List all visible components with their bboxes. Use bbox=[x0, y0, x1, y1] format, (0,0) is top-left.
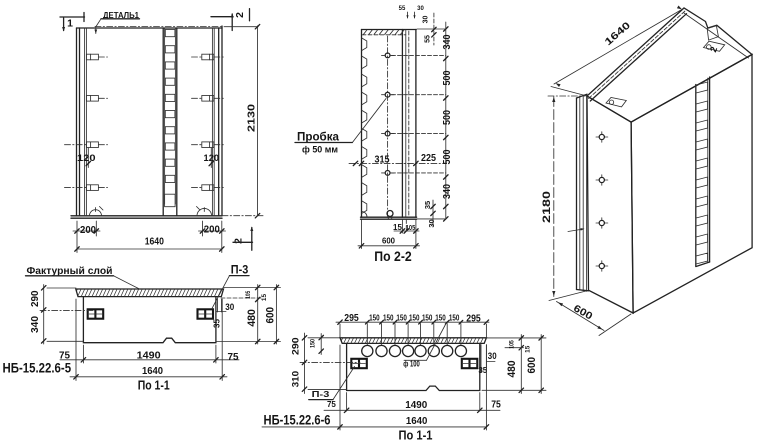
svg-text:1640: 1640 bbox=[406, 416, 428, 427]
svg-text:15: 15 bbox=[393, 223, 402, 232]
svg-text:ф 50 мм: ф 50 мм bbox=[302, 144, 338, 155]
svg-text:150: 150 bbox=[383, 314, 394, 323]
svg-text:200: 200 bbox=[204, 225, 220, 236]
svg-text:П-3: П-3 bbox=[312, 389, 330, 399]
svg-text:600: 600 bbox=[265, 307, 277, 324]
svg-text:По 1-1: По 1-1 bbox=[399, 427, 433, 442]
svg-text:1490: 1490 bbox=[405, 400, 427, 411]
svg-text:225: 225 bbox=[421, 153, 436, 164]
svg-text:150: 150 bbox=[309, 339, 316, 348]
svg-text:30: 30 bbox=[423, 16, 430, 24]
svg-text:55: 55 bbox=[425, 35, 432, 43]
svg-text:2130: 2130 bbox=[246, 103, 257, 132]
svg-text:600: 600 bbox=[526, 357, 538, 374]
svg-text:Фактурный слой: Фактурный слой bbox=[27, 265, 113, 277]
svg-text:35: 35 bbox=[213, 319, 222, 328]
svg-text:1490: 1490 bbox=[137, 350, 161, 361]
svg-text:По 2-2: По 2-2 bbox=[374, 249, 412, 264]
svg-text:НБ-15.22.6-6: НБ-15.22.6-6 bbox=[264, 412, 331, 427]
svg-text:105: 105 bbox=[245, 291, 252, 299]
svg-text:105: 105 bbox=[508, 340, 515, 349]
svg-text:75: 75 bbox=[228, 352, 239, 363]
svg-text:295: 295 bbox=[344, 313, 359, 324]
svg-text:200: 200 bbox=[80, 225, 96, 236]
svg-text:480: 480 bbox=[506, 361, 518, 378]
svg-text:2: 2 bbox=[233, 238, 245, 244]
svg-text:75: 75 bbox=[327, 400, 336, 409]
svg-text:150: 150 bbox=[369, 314, 380, 323]
svg-text:П-3: П-3 bbox=[231, 263, 249, 277]
svg-text:500: 500 bbox=[442, 149, 453, 164]
svg-text:55: 55 bbox=[399, 6, 406, 12]
svg-text:15: 15 bbox=[261, 294, 268, 302]
svg-text:340: 340 bbox=[442, 34, 453, 49]
svg-text:500: 500 bbox=[442, 70, 453, 85]
svg-text:30: 30 bbox=[417, 6, 424, 12]
svg-text:Пробка: Пробка bbox=[297, 129, 339, 143]
svg-text:340: 340 bbox=[442, 184, 453, 199]
svg-text:290: 290 bbox=[290, 337, 300, 355]
svg-text:105: 105 bbox=[406, 225, 416, 232]
svg-text:295: 295 bbox=[466, 314, 481, 325]
svg-text:290: 290 bbox=[30, 290, 41, 307]
svg-text:15: 15 bbox=[525, 345, 532, 353]
svg-text:1640: 1640 bbox=[142, 366, 163, 377]
svg-text:2180: 2180 bbox=[541, 191, 553, 223]
svg-text:30: 30 bbox=[488, 351, 497, 362]
svg-text:НБ-15.22.6-5: НБ-15.22.6-5 bbox=[3, 361, 72, 376]
svg-text:500: 500 bbox=[442, 110, 453, 125]
svg-text:150: 150 bbox=[396, 314, 407, 323]
svg-text:315: 315 bbox=[375, 154, 390, 165]
svg-text:2: 2 bbox=[234, 12, 246, 18]
svg-text:480: 480 bbox=[246, 309, 258, 327]
svg-text:1: 1 bbox=[67, 18, 73, 30]
svg-text:340: 340 bbox=[30, 316, 41, 333]
svg-text:30: 30 bbox=[225, 302, 234, 313]
svg-text:150: 150 bbox=[449, 314, 460, 323]
svg-text:150: 150 bbox=[422, 314, 433, 323]
svg-text:По 1-1: По 1-1 bbox=[138, 377, 170, 392]
svg-text:150: 150 bbox=[435, 314, 446, 323]
svg-text:150: 150 bbox=[409, 314, 420, 323]
svg-text:30: 30 bbox=[427, 219, 436, 227]
svg-text:1640: 1640 bbox=[145, 237, 165, 248]
svg-text:600: 600 bbox=[382, 235, 395, 245]
svg-text:75: 75 bbox=[491, 399, 501, 410]
svg-text:310: 310 bbox=[290, 371, 300, 388]
svg-text:35: 35 bbox=[423, 201, 432, 209]
svg-text:120: 120 bbox=[77, 153, 96, 163]
